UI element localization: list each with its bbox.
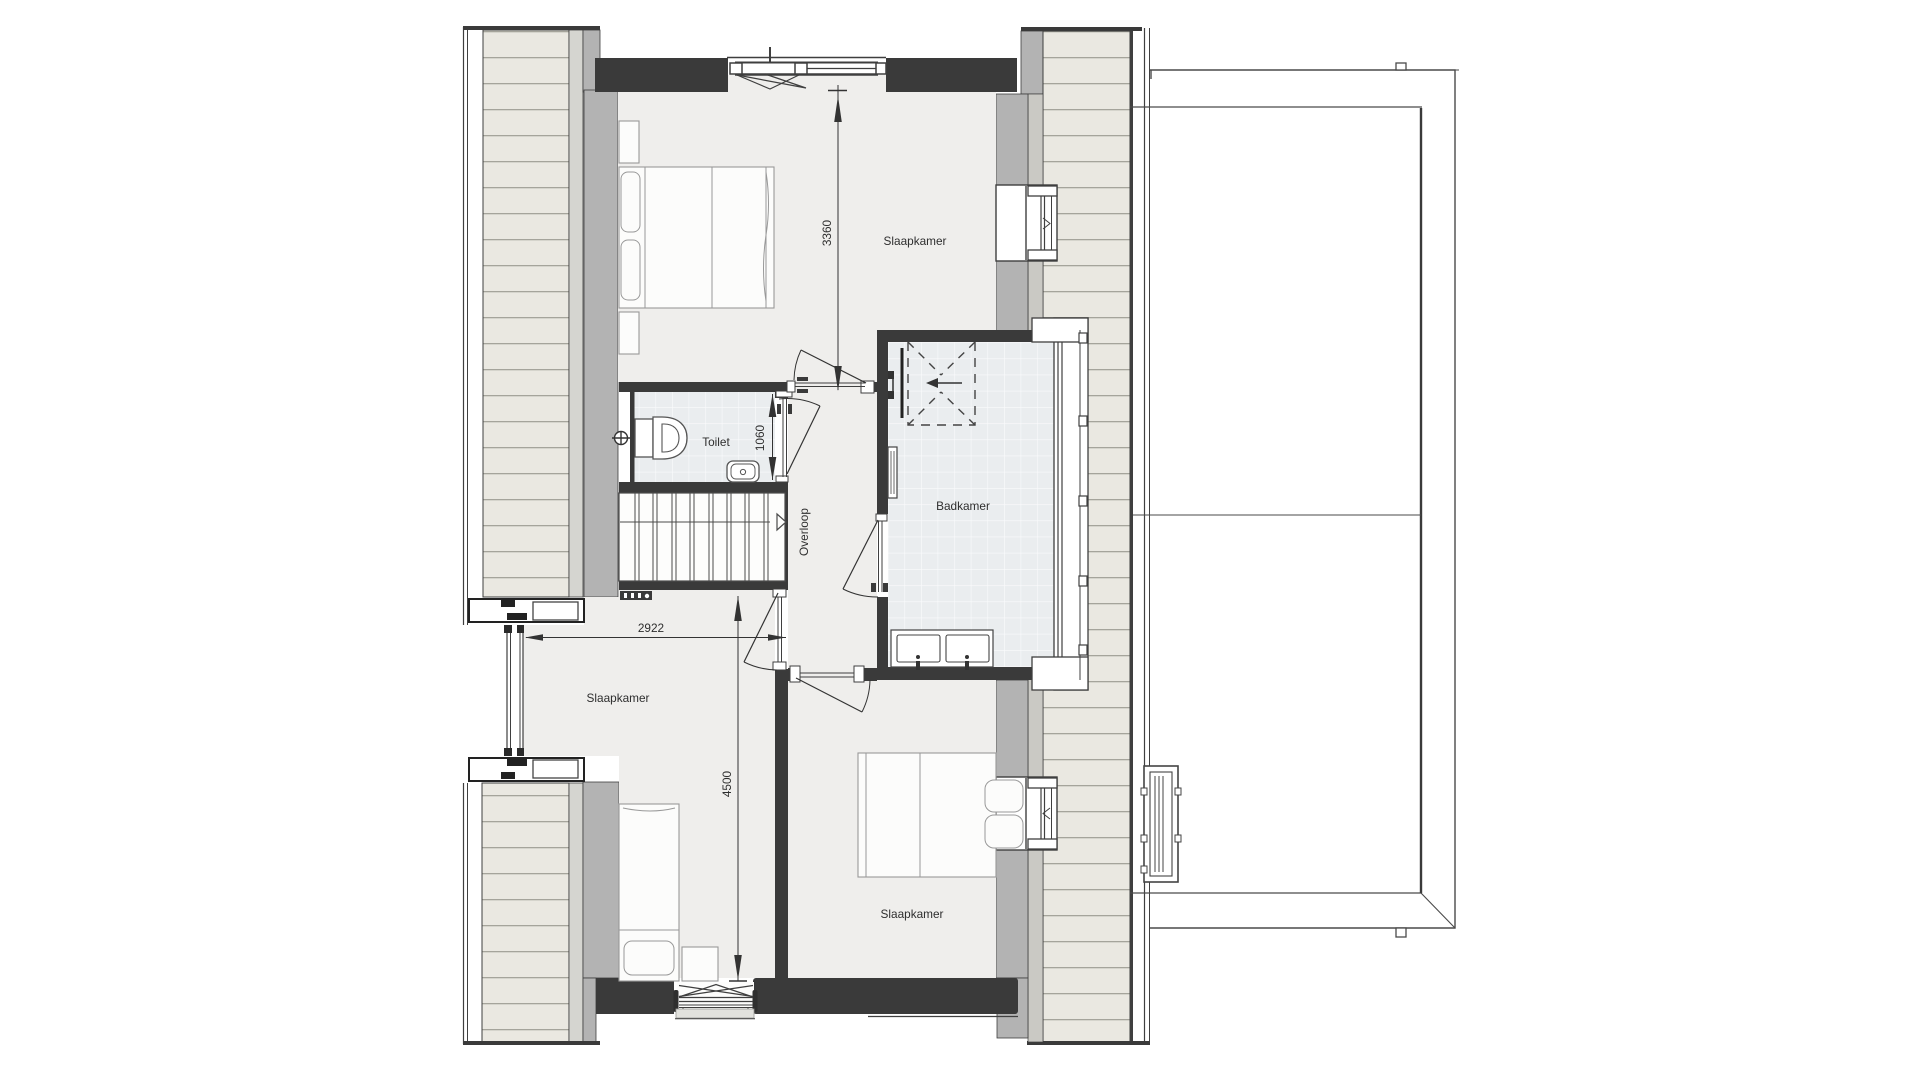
svg-text:Overloop: Overloop bbox=[797, 508, 811, 556]
svg-text:Slaapkamer: Slaapkamer bbox=[884, 234, 947, 248]
svg-text:Slaapkamer: Slaapkamer bbox=[881, 907, 944, 921]
svg-text:Toilet: Toilet bbox=[702, 435, 730, 449]
svg-text:4500: 4500 bbox=[720, 770, 734, 797]
svg-text:3360: 3360 bbox=[820, 219, 834, 246]
svg-text:Badkamer: Badkamer bbox=[936, 499, 990, 513]
svg-text:2922: 2922 bbox=[638, 621, 664, 635]
svg-text:1060: 1060 bbox=[753, 424, 767, 451]
svg-text:Slaapkamer: Slaapkamer bbox=[587, 691, 650, 705]
